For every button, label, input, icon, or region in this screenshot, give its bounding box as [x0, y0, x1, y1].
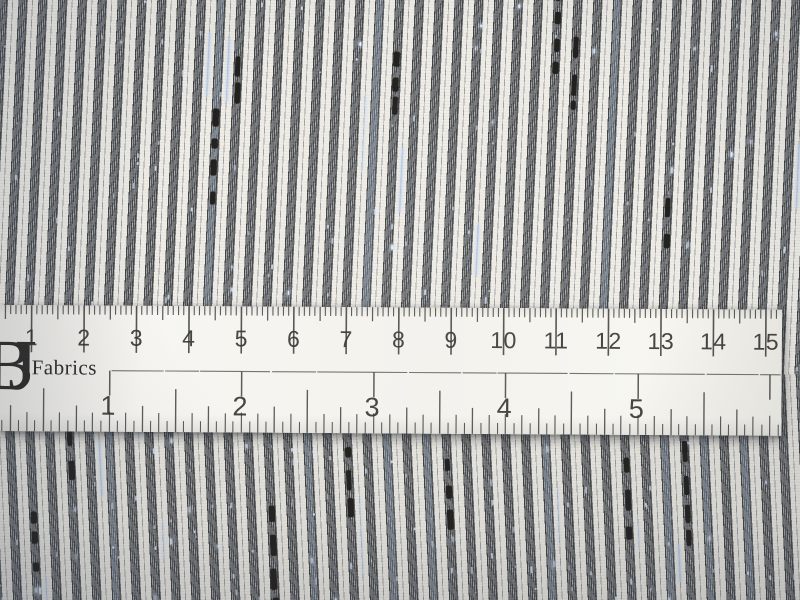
- metallic-glint: [534, 588, 536, 590]
- metallic-glint: [410, 481, 412, 483]
- yarn-slub: [571, 75, 578, 96]
- yarn-slub: [554, 39, 560, 53]
- metallic-glint: [154, 546, 156, 551]
- yarn-slub: [444, 458, 450, 470]
- metallic-thread-streak: [399, 147, 404, 213]
- metallic-glint: [567, 502, 569, 507]
- metallic-glint: [291, 448, 293, 451]
- metallic-glint: [485, 297, 487, 304]
- metallic-glint: [193, 530, 195, 534]
- metallic-glint: [671, 516, 673, 520]
- metallic-glint: [331, 238, 333, 244]
- metallic-glint: [650, 588, 652, 591]
- metallic-glint: [468, 230, 470, 234]
- inch-label-3: 3: [364, 394, 380, 421]
- metallic-glint: [765, 480, 767, 485]
- yarn-slub: [271, 569, 278, 591]
- yarn-slub: [234, 56, 241, 77]
- metallic-glint: [565, 436, 567, 439]
- metallic-glint: [634, 131, 636, 137]
- yarn-slub: [345, 447, 351, 457]
- metallic-glint: [212, 505, 214, 509]
- metallic-glint: [615, 596, 617, 600]
- yarn-slub: [685, 505, 691, 523]
- metallic-glint: [200, 30, 202, 36]
- metallic-glint: [113, 192, 115, 198]
- metallic-glint: [776, 37, 778, 41]
- metallic-glint: [431, 198, 433, 200]
- metallic-glint: [236, 589, 238, 595]
- yarn-slub: [213, 108, 219, 126]
- cm-label-8: 8: [392, 328, 405, 351]
- yarn-slub: [686, 530, 692, 546]
- metallic-glint: [356, 57, 358, 61]
- metallic-glint: [153, 525, 155, 530]
- cm-label-14: 14: [700, 330, 727, 353]
- yarn-slub: [555, 12, 561, 24]
- metallic-glint: [687, 441, 689, 444]
- yarn-slub: [210, 160, 216, 176]
- metallic-glint: [16, 122, 18, 125]
- metallic-thread-streak: [359, 497, 364, 573]
- metallic-glint: [630, 578, 632, 584]
- metallic-glint: [585, 487, 587, 494]
- metallic-glint: [16, 539, 18, 545]
- cm-label-10: 10: [490, 329, 517, 352]
- metallic-glint: [137, 153, 139, 158]
- metallic-glint: [775, 31, 777, 36]
- metallic-glint: [144, 0, 146, 3]
- cm-label-9: 9: [444, 329, 457, 352]
- cm-label-13: 13: [648, 330, 675, 353]
- metallic-glint: [35, 588, 37, 593]
- metallic-glint: [546, 446, 548, 452]
- metallic-glint: [14, 174, 16, 181]
- yarn-slub: [664, 198, 670, 217]
- cm-label-5: 5: [235, 327, 248, 350]
- metallic-glint: [190, 208, 192, 212]
- metallic-glint: [195, 535, 197, 539]
- metallic-glint: [309, 193, 311, 196]
- metallic-glint: [231, 288, 233, 291]
- metallic-glint: [315, 578, 317, 585]
- metallic-glint: [154, 595, 156, 600]
- metallic-glint: [709, 536, 711, 540]
- yarn-slub: [212, 138, 218, 149]
- yarn-slub: [394, 52, 400, 67]
- metallic-glint: [475, 46, 477, 50]
- metallic-glint: [710, 187, 712, 194]
- metallic-glint: [182, 70, 184, 77]
- metallic-glint: [74, 508, 76, 513]
- metallic-glint: [112, 546, 114, 549]
- metallic-glint: [154, 166, 156, 172]
- metallic-glint: [153, 448, 155, 454]
- cm-label-1: 1: [25, 326, 38, 349]
- metallic-glint: [451, 567, 453, 574]
- metallic-thread-streak: [226, 38, 230, 101]
- cm-label-4: 4: [182, 327, 195, 350]
- metallic-glint: [591, 180, 593, 186]
- cm-label-12: 12: [595, 330, 622, 353]
- metallic-glint: [220, 92, 222, 97]
- metallic-glint: [512, 527, 514, 533]
- metallic-glint: [135, 496, 137, 501]
- metallic-glint: [730, 152, 732, 157]
- metallic-glint: [627, 202, 629, 206]
- metallic-glint: [475, 591, 477, 594]
- metallic-glint: [642, 440, 644, 444]
- metallic-glint: [230, 502, 232, 508]
- cm-label-3: 3: [130, 327, 143, 350]
- yarn-slub: [446, 486, 452, 499]
- ruler: BJ Fabrics 123456789101112131415 12345: [0, 305, 782, 436]
- metallic-glint: [252, 549, 254, 553]
- metallic-glint: [391, 244, 393, 250]
- metallic-glint: [667, 192, 669, 195]
- inch-label-1: 1: [100, 393, 116, 420]
- metallic-glint: [319, 71, 321, 73]
- cm-label-7: 7: [339, 328, 352, 351]
- metallic-stripe-tint: [105, 405, 122, 600]
- metallic-glint: [671, 168, 673, 173]
- metallic-glint: [137, 162, 139, 166]
- metallic-glint: [374, 208, 376, 215]
- metallic-glint: [68, 246, 70, 251]
- metallic-thread-streak: [678, 544, 681, 582]
- metallic-glint: [396, 576, 398, 581]
- metallic-glint: [292, 459, 294, 465]
- metallic-glint: [398, 4, 400, 8]
- yarn-slub: [555, 0, 561, 1]
- metallic-glint: [94, 482, 96, 487]
- metallic-glint: [414, 528, 416, 531]
- yarn-slub: [625, 490, 632, 511]
- metallic-glint: [648, 218, 650, 221]
- metallic-glint: [391, 224, 393, 230]
- yarn-slub: [447, 510, 453, 530]
- metallic-glint: [94, 476, 96, 478]
- metallic-glint: [518, 5, 520, 8]
- metallic-glint: [58, 111, 60, 117]
- inch-label-5: 5: [629, 396, 645, 423]
- metallic-glint: [593, 49, 595, 54]
- scale-divider-line: [112, 371, 781, 375]
- metallic-glint: [133, 183, 135, 189]
- metallic-glint: [762, 271, 764, 277]
- metallic-thread-streak: [206, 32, 211, 97]
- metallic-glint: [247, 232, 249, 236]
- metallic-thread-streak: [795, 144, 800, 209]
- metallic-thread-streak: [361, 95, 366, 171]
- metallic-glint: [750, 140, 752, 144]
- metallic-glint: [217, 545, 219, 547]
- metallic-glint: [350, 562, 352, 566]
- metallic-glint: [189, 507, 191, 513]
- metallic-glint: [4, 45, 6, 48]
- metallic-glint: [93, 434, 95, 440]
- yarn-slub: [32, 531, 38, 543]
- metallic-glint: [371, 559, 373, 562]
- inch-label-4: 4: [497, 395, 513, 422]
- metallic-glint: [747, 571, 749, 575]
- metallic-glint: [365, 468, 367, 473]
- metallic-thread-streak: [98, 440, 102, 497]
- metallic-glint: [491, 553, 493, 559]
- yarn-slub: [392, 78, 398, 92]
- metallic-glint: [171, 439, 173, 444]
- metallic-glint: [568, 566, 570, 570]
- metallic-glint: [687, 242, 689, 249]
- metallic-glint: [480, 24, 482, 27]
- cm-label-2: 2: [77, 326, 90, 349]
- metallic-glint: [480, 48, 482, 53]
- metallic-glint: [783, 247, 785, 254]
- yarn-slub: [683, 476, 689, 495]
- yarn-slub: [68, 461, 74, 480]
- metallic-glint: [492, 142, 494, 145]
- metallic-glint: [424, 289, 426, 295]
- metallic-glint: [672, 142, 674, 145]
- yarn-slub: [234, 82, 241, 103]
- metallic-thread-streak: [637, 524, 640, 550]
- yarn-slub: [552, 62, 558, 75]
- metallic-glint: [327, 224, 329, 228]
- metallic-glint: [452, 537, 454, 542]
- metallic-glint: [530, 567, 532, 574]
- metallic-glint: [39, 588, 41, 594]
- metallic-thread-streak: [557, 487, 561, 546]
- metallic-thread-streak: [162, 520, 165, 560]
- metallic-glint: [390, 460, 392, 464]
- metallic-glint: [189, 469, 191, 471]
- metallic-glint: [120, 41, 122, 43]
- metallic-glint: [234, 164, 236, 170]
- metallic-glint: [793, 574, 795, 580]
- yarn-slub: [31, 511, 37, 523]
- metallic-glint: [161, 39, 163, 45]
- metallic-glint: [167, 294, 169, 300]
- metallic-glint: [475, 125, 477, 130]
- yarn-slub: [626, 527, 632, 540]
- metallic-glint: [158, 141, 160, 145]
- yarn-slub: [570, 101, 576, 111]
- metallic-glint: [350, 564, 352, 569]
- metallic-glint: [292, 499, 294, 506]
- metallic-glint: [736, 24, 738, 28]
- metallic-glint: [490, 479, 492, 486]
- inch-label-2: 2: [232, 393, 248, 420]
- metallic-glint: [313, 513, 315, 516]
- metallic-glint: [668, 542, 670, 546]
- metallic-glint: [258, 596, 260, 600]
- metallic-glint: [56, 217, 58, 223]
- metallic-glint: [432, 541, 434, 548]
- metallic-glint: [552, 133, 554, 137]
- metallic-glint: [554, 561, 556, 567]
- metallic-glint: [111, 503, 113, 509]
- metallic-glint: [657, 28, 659, 31]
- metallic-glint: [413, 115, 415, 121]
- metallic-glint: [271, 264, 273, 270]
- metallic-glint: [514, 566, 516, 568]
- metallic-glint: [646, 505, 648, 509]
- metallic-glint: [554, 34, 556, 38]
- metallic-glint: [796, 367, 798, 370]
- cm-label-6: 6: [287, 328, 300, 351]
- metallic-glint: [359, 42, 361, 45]
- metallic-glint: [75, 554, 77, 558]
- metallic-glint: [431, 517, 433, 520]
- yarn-slub: [573, 37, 580, 58]
- metallic-glint: [330, 456, 332, 460]
- metallic-glint: [327, 494, 329, 499]
- metallic-glint: [0, 584, 1, 587]
- metallic-glint: [694, 47, 696, 49]
- metallic-thread-streak: [45, 577, 49, 600]
- metallic-glint: [245, 444, 247, 448]
- yarn-slub: [664, 234, 670, 248]
- yarn-slub: [270, 535, 277, 556]
- metallic-glint: [405, 241, 407, 246]
- yarn-slub: [623, 457, 629, 472]
- metallic-glint: [70, 469, 72, 473]
- metallic-glint: [173, 503, 175, 505]
- metallic-glint: [405, 474, 407, 478]
- metallic-glint: [491, 120, 493, 124]
- ruler-tick-marks: [0, 305, 782, 436]
- metallic-glint: [571, 587, 573, 591]
- cm-label-11: 11: [543, 329, 568, 352]
- metallic-glint: [625, 457, 627, 460]
- metallic-glint: [101, 36, 103, 40]
- metallic-glint: [69, 465, 71, 470]
- metallic-glint: [470, 566, 472, 573]
- metallic-glint: [261, 3, 263, 8]
- metallic-glint: [312, 451, 314, 454]
- metallic-glint: [566, 218, 568, 220]
- fabric-photo: BJ Fabrics 123456789101112131415 12345: [0, 0, 800, 600]
- metallic-glint: [649, 486, 651, 491]
- metallic-glint: [491, 500, 493, 507]
- metallic-glint: [170, 538, 172, 544]
- metallic-glint: [287, 291, 289, 295]
- metallic-glint: [268, 274, 270, 278]
- metallic-glint: [52, 462, 54, 468]
- metallic-glint: [229, 505, 231, 508]
- metallic-glint: [452, 206, 454, 210]
- metallic-glint: [691, 523, 693, 529]
- metallic-glint: [117, 556, 119, 559]
- metallic-glint: [590, 571, 592, 575]
- yarn-slub: [210, 192, 216, 205]
- metallic-glint: [769, 575, 771, 579]
- metallic-glint: [489, 290, 491, 292]
- cm-label-15: 15: [752, 331, 779, 354]
- metallic-glint: [710, 65, 712, 72]
- metallic-glint: [645, 502, 647, 506]
- metallic-glint: [231, 265, 233, 269]
- yarn-slub: [346, 470, 353, 491]
- yarn-slub: [682, 441, 689, 462]
- metallic-glint: [713, 569, 715, 572]
- yarn-slub: [33, 562, 39, 572]
- metallic-glint: [301, 6, 303, 10]
- yarn-slub: [392, 97, 398, 114]
- metallic-glint: [388, 517, 390, 519]
- yarn-slub: [269, 505, 275, 521]
- metallic-glint: [327, 293, 329, 297]
- metallic-glint: [607, 500, 609, 506]
- yarn-slub: [348, 498, 354, 518]
- metallic-glint: [27, 274, 29, 281]
- metallic-glint: [56, 552, 58, 558]
- metallic-glint: [233, 574, 235, 579]
- metallic-glint: [170, 519, 172, 522]
- metallic-glint: [311, 558, 313, 562]
- metallic-glint: [301, 28, 303, 33]
- metallic-glint: [392, 124, 394, 127]
- metallic-glint: [270, 445, 272, 448]
- metallic-thread-streak: [475, 224, 479, 276]
